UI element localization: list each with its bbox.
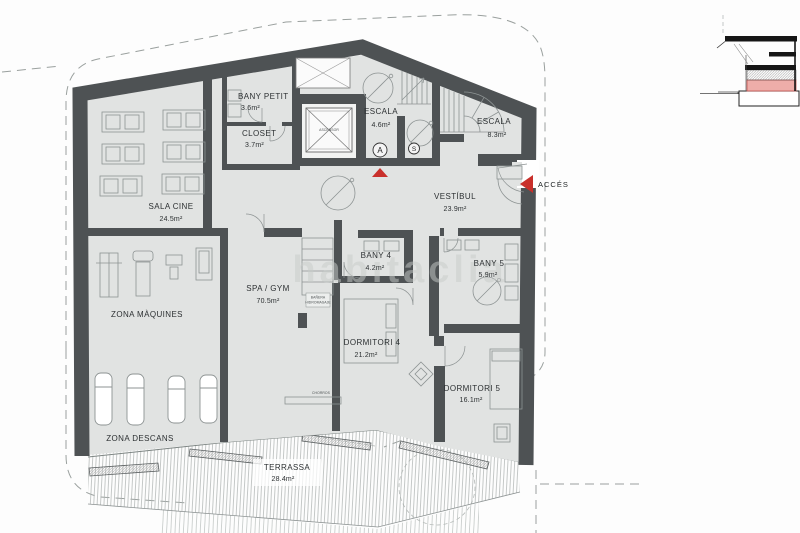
room-label-dormitori-5: DORMITORI 5 xyxy=(444,384,501,393)
room-label-zona-descans: ZONA DESCANS xyxy=(106,434,173,443)
room-area-dormitori-5: 16.1m² xyxy=(460,397,483,404)
watermark: habitaclia xyxy=(292,249,507,291)
banera-label-1: BAÑERA xyxy=(311,295,326,300)
room-area-bany-5: 5.9m² xyxy=(479,272,498,279)
room-label-closet: CLOSET xyxy=(242,129,276,138)
room-label-terrassa: TERRASSA xyxy=(264,463,311,472)
svg-text:A: A xyxy=(377,146,383,155)
room-label-vestibul: VESTÍBUL xyxy=(434,192,476,201)
room-label-bany-petit: BANY PETIT xyxy=(238,92,289,101)
floor-plan-sheet: ACCÉS ASCENSOR A S xyxy=(0,0,800,533)
room-area-terrassa: 28.4m² xyxy=(272,476,295,483)
floor-plan-drawing: ACCÉS ASCENSOR A S xyxy=(0,0,800,533)
room-label-escala-a: ESCALA xyxy=(364,107,398,116)
stair-a-badge: A xyxy=(373,143,387,157)
elevator-label: ASCENSOR xyxy=(319,128,339,132)
room-area-bany-petit: 3.6m² xyxy=(241,105,260,112)
room-label-bany-4: BANY 4 xyxy=(361,251,392,260)
elevator-shaft-void xyxy=(296,58,350,88)
room-label-spa-gym: SPA / GYM xyxy=(246,284,289,293)
elevator: ASCENSOR xyxy=(306,108,352,152)
stair-s-badge: S xyxy=(409,143,420,154)
section-inset xyxy=(700,36,799,106)
room-label-zona-maquines: ZONA MÀQUINES xyxy=(111,310,183,319)
room-area-dormitori-4: 21.2m² xyxy=(355,352,378,359)
room-area-escala-a: 4.6m² xyxy=(372,122,391,129)
section-highlight-floor xyxy=(747,80,796,91)
room-label-dormitori-4: DORMITORI 4 xyxy=(344,338,401,347)
room-area-vestibul: 23.9m² xyxy=(444,206,467,213)
room-area-escala-b: 8.3m² xyxy=(488,132,507,139)
room-area-spa-gym: 70.5m² xyxy=(257,298,280,305)
svg-text:S: S xyxy=(412,146,417,153)
chorros-label: CHORROS xyxy=(312,391,331,395)
room-label-bany-5: BANY 5 xyxy=(474,259,505,268)
room-area-sala-cine: 24.5m² xyxy=(160,216,183,223)
room-label-sala-cine: SALA CINE xyxy=(149,202,194,211)
room-area-bany-4: 4.2m² xyxy=(366,265,385,272)
room-area-closet: 3.7m² xyxy=(245,142,264,149)
acces-label: ACCÉS xyxy=(538,180,569,189)
room-label-escala-b: ESCALA xyxy=(477,117,511,126)
banera-label-2: HIDROMASAJE xyxy=(305,301,331,305)
